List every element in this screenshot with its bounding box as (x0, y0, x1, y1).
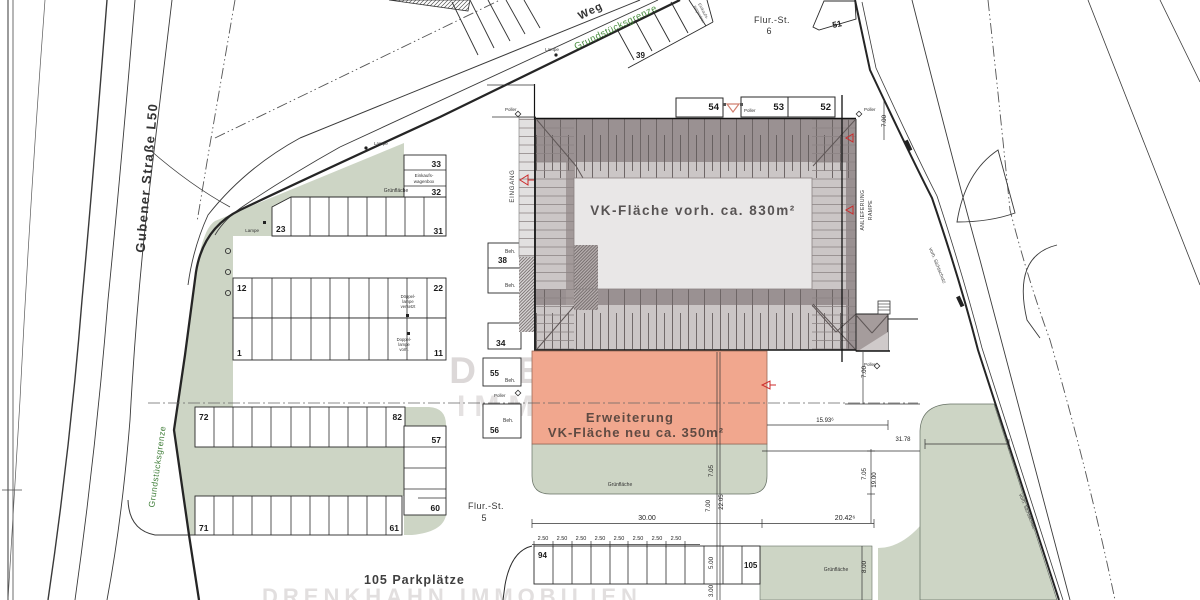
svg-text:52: 52 (820, 102, 831, 113)
svg-text:8.00: 8.00 (861, 560, 868, 573)
svg-text:Grünfläche: Grünfläche (608, 482, 633, 488)
svg-text:61: 61 (390, 523, 400, 533)
svg-text:VK-Fläche neu ca. 350m²: VK-Fläche neu ca. 350m² (548, 425, 724, 440)
svg-text:12: 12 (237, 283, 247, 293)
svg-text:38: 38 (498, 256, 507, 265)
svg-text:94: 94 (538, 551, 547, 560)
svg-text:31: 31 (434, 226, 444, 236)
svg-text:54: 54 (708, 102, 719, 113)
svg-text:22.05: 22.05 (718, 494, 725, 510)
svg-text:Beh.: Beh. (503, 418, 513, 424)
svg-text:Beh.: Beh. (505, 283, 515, 289)
svg-text:EINGANG: EINGANG (510, 169, 516, 202)
svg-text:1: 1 (237, 348, 242, 358)
svg-text:2.50: 2.50 (614, 536, 625, 542)
svg-text:Grünfläche: Grünfläche (384, 188, 409, 194)
svg-text:Grünfläche: Grünfläche (824, 567, 849, 573)
svg-text:wagenbox: wagenbox (414, 179, 435, 184)
svg-text:Beh.: Beh. (505, 249, 515, 255)
svg-text:Erweiterung: Erweiterung (586, 410, 674, 425)
svg-text:RAMPE: RAMPE (868, 200, 874, 220)
svg-text:Poller: Poller (494, 393, 506, 398)
svg-text:5: 5 (481, 513, 486, 523)
svg-text:7.00: 7.00 (861, 365, 868, 378)
svg-text:15.93⁶: 15.93⁶ (816, 417, 834, 424)
svg-text:20.42⁶: 20.42⁶ (835, 515, 856, 522)
svg-text:Poller: Poller (744, 108, 756, 113)
svg-text:6: 6 (766, 26, 771, 36)
svg-text:vorh.: vorh. (399, 347, 408, 352)
svg-text:30.00: 30.00 (638, 515, 656, 522)
svg-text:2.50: 2.50 (557, 536, 568, 542)
svg-text:2.50: 2.50 (595, 536, 606, 542)
svg-text:33: 33 (432, 159, 442, 169)
svg-text:Flur.-St.: Flur.-St. (754, 15, 790, 25)
svg-text:23: 23 (276, 224, 286, 234)
svg-text:VK-Fläche vorh. ca. 830m²: VK-Fläche vorh. ca. 830m² (590, 203, 796, 218)
svg-text:105: 105 (744, 561, 758, 570)
svg-text:105 Parkplätze: 105 Parkplätze (364, 573, 465, 587)
svg-text:7.00: 7.00 (705, 499, 712, 512)
svg-text:82: 82 (393, 412, 403, 422)
svg-text:Lampe: Lampe (245, 228, 259, 233)
svg-text:11: 11 (434, 348, 443, 358)
svg-text:versetzt: versetzt (401, 304, 416, 309)
svg-text:72: 72 (199, 412, 209, 422)
svg-text:5.00: 5.00 (708, 556, 715, 569)
svg-text:34: 34 (496, 338, 506, 348)
svg-text:71: 71 (199, 523, 209, 533)
svg-text:2.50: 2.50 (538, 536, 549, 542)
svg-text:Poller: Poller (864, 107, 876, 112)
svg-text:2.50: 2.50 (652, 536, 663, 542)
svg-text:56: 56 (490, 426, 499, 435)
svg-text:32: 32 (432, 187, 442, 197)
svg-text:53: 53 (773, 102, 784, 113)
svg-text:Lampe: Lampe (374, 141, 388, 146)
svg-text:ANLIEFERUNG: ANLIEFERUNG (860, 189, 866, 230)
svg-text:60: 60 (431, 503, 441, 513)
svg-text:2.50: 2.50 (633, 536, 644, 542)
svg-text:22: 22 (434, 283, 444, 293)
svg-text:31.78: 31.78 (895, 437, 911, 443)
svg-text:2.50: 2.50 (576, 536, 587, 542)
svg-text:Poller: Poller (505, 107, 517, 112)
svg-text:55: 55 (490, 369, 499, 378)
svg-text:Beh.: Beh. (505, 378, 515, 384)
svg-text:7.00: 7.00 (881, 114, 888, 127)
svg-text:Flur.-St.: Flur.-St. (468, 501, 504, 511)
svg-text:7.05: 7.05 (861, 467, 868, 480)
svg-text:3.00: 3.00 (708, 584, 715, 597)
svg-text:39: 39 (636, 51, 645, 60)
svg-text:7.05: 7.05 (708, 464, 715, 477)
svg-text:Lampe: Lampe (545, 47, 559, 52)
svg-text:57: 57 (432, 435, 442, 445)
svg-text:Einkaufs-: Einkaufs- (415, 173, 434, 178)
svg-text:2.50: 2.50 (671, 536, 682, 542)
svg-text:19.00: 19.00 (871, 472, 878, 488)
